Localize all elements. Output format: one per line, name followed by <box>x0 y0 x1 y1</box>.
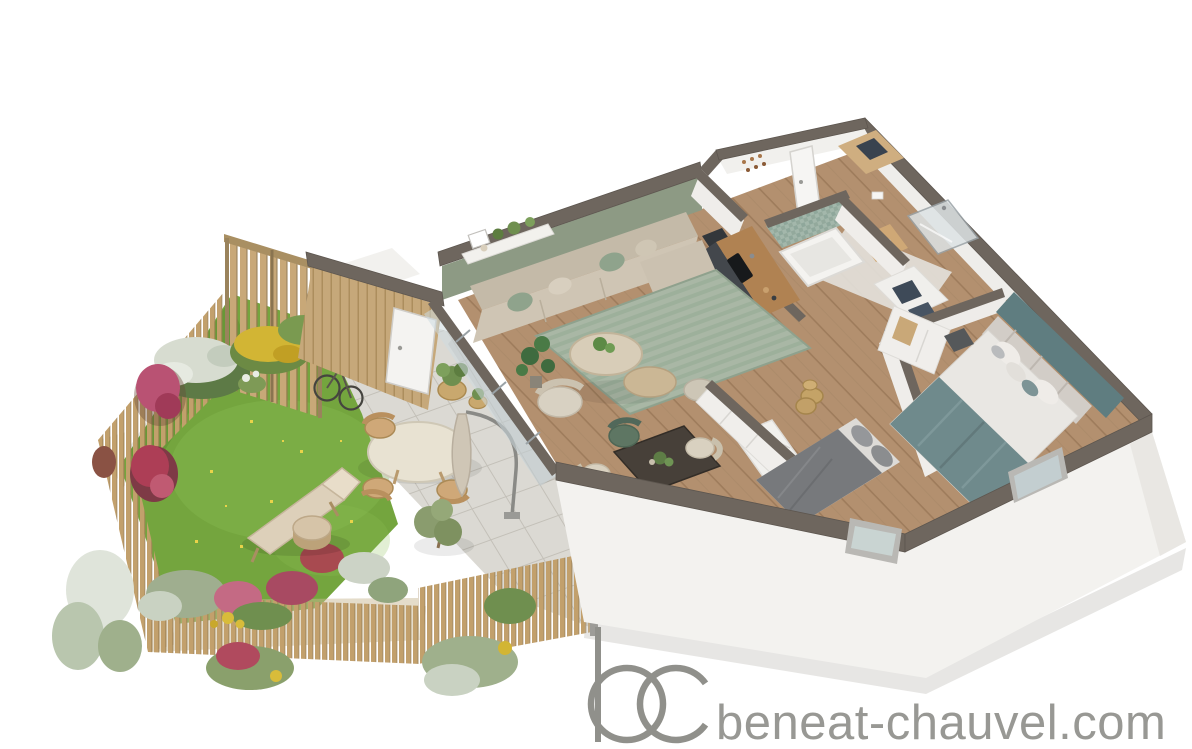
foliage <box>98 620 142 672</box>
bloom <box>424 664 480 696</box>
plant <box>436 363 450 377</box>
counter-item <box>763 287 769 293</box>
bloom <box>150 474 174 498</box>
bloom <box>155 393 181 419</box>
logo-c <box>640 668 706 740</box>
hook <box>746 168 750 172</box>
bloom <box>273 345 303 363</box>
coffee-table-large[interactable] <box>570 333 642 375</box>
watermark-site-text[interactable]: beneat-chauvel.com <box>716 696 1166 749</box>
foliage <box>368 577 408 603</box>
seat <box>538 387 582 417</box>
wicker-basket-hall <box>803 380 817 390</box>
centerpiece-vase <box>649 459 655 465</box>
floorplan-render-page: beneat-chauvel.com <box>0 0 1192 749</box>
hook <box>754 165 758 169</box>
bloom <box>266 571 318 605</box>
hook <box>758 154 762 158</box>
stump-side-table[interactable] <box>293 516 331 550</box>
plant <box>525 217 535 227</box>
plant <box>508 222 521 235</box>
vase <box>481 245 488 252</box>
seat <box>365 418 395 438</box>
hook <box>750 157 754 161</box>
towels <box>872 192 883 199</box>
garden-door[interactable] <box>386 308 436 394</box>
faucet <box>750 254 755 259</box>
bloom <box>222 612 234 624</box>
leaf <box>516 364 528 376</box>
canopy <box>434 518 462 546</box>
table-plant <box>593 337 607 351</box>
stump-top <box>293 516 331 540</box>
door-handle <box>799 180 803 184</box>
seat <box>609 425 639 447</box>
centerpiece-plant <box>665 458 674 467</box>
bloom <box>216 642 260 670</box>
bloom <box>242 374 250 382</box>
leaf <box>541 359 555 373</box>
armchair[interactable] <box>538 382 582 417</box>
canopy <box>431 499 453 521</box>
counter-item <box>772 296 777 301</box>
coffee-table-small[interactable] <box>624 367 676 397</box>
bloom <box>270 670 282 682</box>
foliage <box>52 602 104 670</box>
foliage <box>484 588 536 624</box>
outdoor-chair[interactable] <box>364 415 395 438</box>
plant <box>493 229 504 240</box>
seat <box>686 438 714 458</box>
bloom <box>498 641 512 655</box>
bloom <box>210 620 218 628</box>
table-plant <box>605 343 615 353</box>
bloom <box>253 371 260 378</box>
grass-tuft <box>92 446 116 478</box>
bloom <box>138 591 182 621</box>
bloom <box>236 620 245 629</box>
hook <box>742 160 746 164</box>
pot <box>530 376 542 388</box>
wicker-basket[interactable] <box>796 398 816 414</box>
door-handle <box>398 346 402 350</box>
shower-head <box>942 206 946 210</box>
hook <box>762 162 766 166</box>
leaf <box>521 347 539 365</box>
floorplan-render: beneat-chauvel.com <box>0 0 1192 749</box>
leaf <box>534 336 550 352</box>
parasol-base <box>504 512 520 519</box>
